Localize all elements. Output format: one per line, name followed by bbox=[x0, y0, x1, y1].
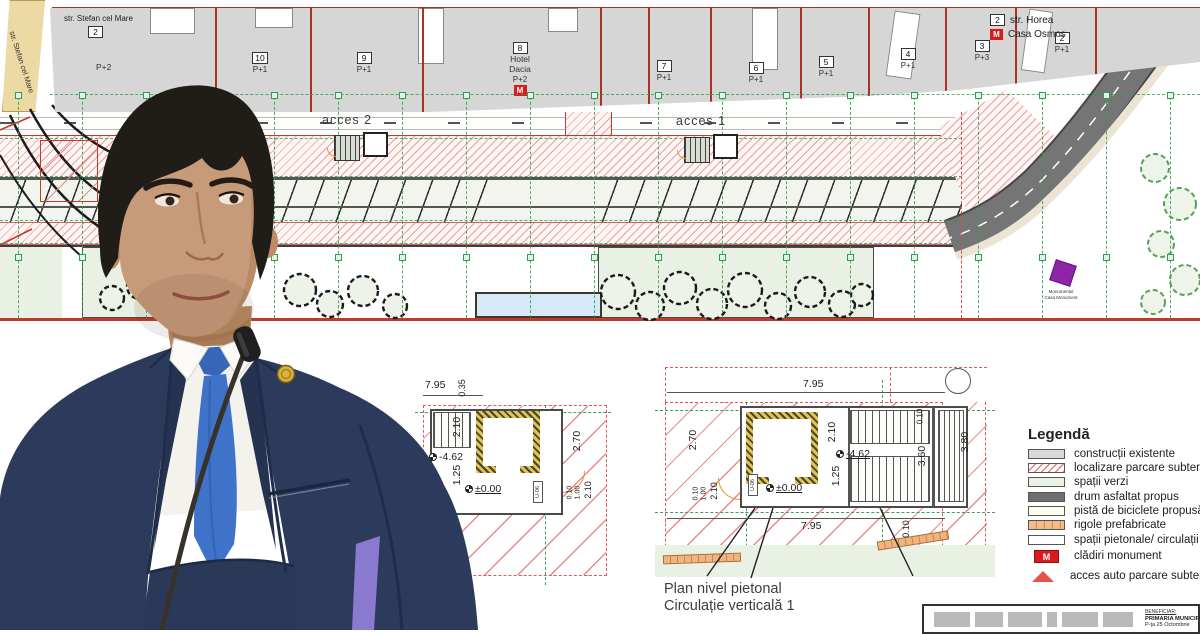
swatch-parking bbox=[1028, 463, 1065, 473]
legend-item: pistă de biciclete propusă bbox=[1028, 506, 1200, 517]
swatch-road bbox=[1028, 492, 1065, 502]
dim-210: 2.10 bbox=[826, 422, 838, 442]
dim-010c: 0.10 bbox=[901, 520, 911, 538]
legend-item: acces auto parcare subterană bbox=[1028, 569, 1200, 584]
building-label: 3 P+3 bbox=[960, 40, 1004, 62]
dim-795-top: 7.95 bbox=[803, 378, 823, 390]
dim-010: 0.10 bbox=[566, 486, 573, 500]
dim-380: 3.80 bbox=[959, 432, 971, 452]
legend-item: spații pietonale/ circulații auto bbox=[1028, 534, 1200, 545]
dim-line bbox=[667, 392, 945, 393]
swatch-rigole bbox=[1028, 520, 1065, 530]
legend-item: drum asfaltat propus bbox=[1028, 491, 1200, 502]
road-hatch-patch bbox=[565, 112, 612, 135]
swatch-existing bbox=[1028, 449, 1065, 459]
marker-circle bbox=[945, 368, 971, 394]
building-label: 10 P+1 bbox=[238, 52, 282, 74]
building-label: 5 P+1 bbox=[804, 56, 848, 78]
section-divider bbox=[961, 112, 962, 318]
legend-title: Legendă bbox=[1028, 426, 1200, 443]
building-floors: P+2 bbox=[96, 63, 111, 72]
street-number-top: 2 bbox=[88, 26, 103, 38]
ramp-lines bbox=[655, 500, 995, 580]
detail-plan-right: U-06 ±0.00 -4.62 2.10 1.25 0.10 3.60 7.9… bbox=[655, 360, 1000, 592]
person-body bbox=[0, 306, 478, 630]
person-head bbox=[98, 85, 278, 342]
stair-core: U-06 ±0.00 -4.62 2.10 1.25 0.10 3.60 bbox=[740, 406, 968, 508]
stairs-side bbox=[938, 410, 964, 502]
firm-logo bbox=[934, 612, 1133, 627]
building-label: 9 P+1 bbox=[342, 52, 386, 74]
triangle-icon bbox=[1032, 571, 1054, 582]
dim-010a: 0.10 bbox=[692, 487, 699, 501]
monument-badge: M bbox=[990, 29, 1003, 40]
building-label: 4 P+1 bbox=[886, 48, 930, 70]
legend-item: localizare parcare subterană bbox=[1028, 462, 1200, 473]
building-label: 7 P+1 bbox=[642, 60, 686, 82]
dim-210b: 2.10 bbox=[583, 481, 593, 499]
unit-label: U-06 bbox=[748, 474, 758, 496]
dim-462: -4.62 bbox=[836, 448, 870, 460]
dim-100: 1.00 bbox=[574, 486, 581, 500]
dim-line bbox=[667, 518, 945, 519]
beneficiar-address: P-ța 25 Octombrie bbox=[1145, 622, 1200, 629]
elevator bbox=[713, 134, 738, 159]
person-photo bbox=[0, 80, 520, 630]
swatch-bike bbox=[1028, 506, 1065, 516]
legend-item: construcții existente bbox=[1028, 448, 1200, 459]
monument-label: Monumentul Casa Monument bbox=[1026, 289, 1096, 300]
dim-360: 3.60 bbox=[916, 446, 928, 466]
legend-item: spații verzi bbox=[1028, 477, 1200, 488]
dim-125: 1.25 bbox=[830, 466, 842, 486]
unit-label: U-06 bbox=[533, 481, 543, 503]
dim-100: 1.00 bbox=[700, 487, 707, 501]
legend: Legendă construcții existente localizare… bbox=[1028, 426, 1200, 589]
caption-line1: Plan nivel pietonal bbox=[664, 581, 782, 597]
right-trees bbox=[1125, 140, 1200, 320]
street-label-horea: 2 str. Horea M Casa Osmos bbox=[990, 14, 1066, 40]
acces1-structure bbox=[684, 134, 740, 168]
legend-item: Mclădiri monument bbox=[1028, 549, 1200, 564]
lapel-pin bbox=[278, 366, 295, 383]
suit-left bbox=[0, 348, 172, 630]
building-label: 6 P+1 bbox=[734, 62, 778, 84]
dim-270: 2.70 bbox=[687, 430, 699, 450]
caption-line2: Circulație verticală 1 bbox=[664, 598, 795, 614]
upper-dashed-line bbox=[665, 367, 987, 368]
stairs bbox=[684, 137, 710, 163]
dim-795-bottom: 7.95 bbox=[801, 520, 821, 532]
beneficiar-info: BENEFICIAR: PRIMARIA MUNICIP P-ța 25 Oct… bbox=[1145, 609, 1200, 629]
monument-badge: M bbox=[1034, 550, 1059, 563]
dim-000: ±0.00 bbox=[766, 482, 802, 494]
dim-210a: 2.10 bbox=[709, 482, 719, 500]
swatch-pedestrian bbox=[1028, 535, 1065, 545]
swatch-green bbox=[1028, 477, 1065, 487]
acces1-label: acces 1 bbox=[676, 114, 726, 128]
dim-270: 2.70 bbox=[571, 431, 583, 451]
beneficiar-name: PRIMARIA MUNICIP bbox=[1145, 616, 1200, 622]
dim-010: 0.10 bbox=[915, 409, 924, 425]
street-label-top: str. Stefan cel Mare bbox=[64, 14, 133, 23]
legend-item: rigole prefabricate bbox=[1028, 520, 1200, 531]
